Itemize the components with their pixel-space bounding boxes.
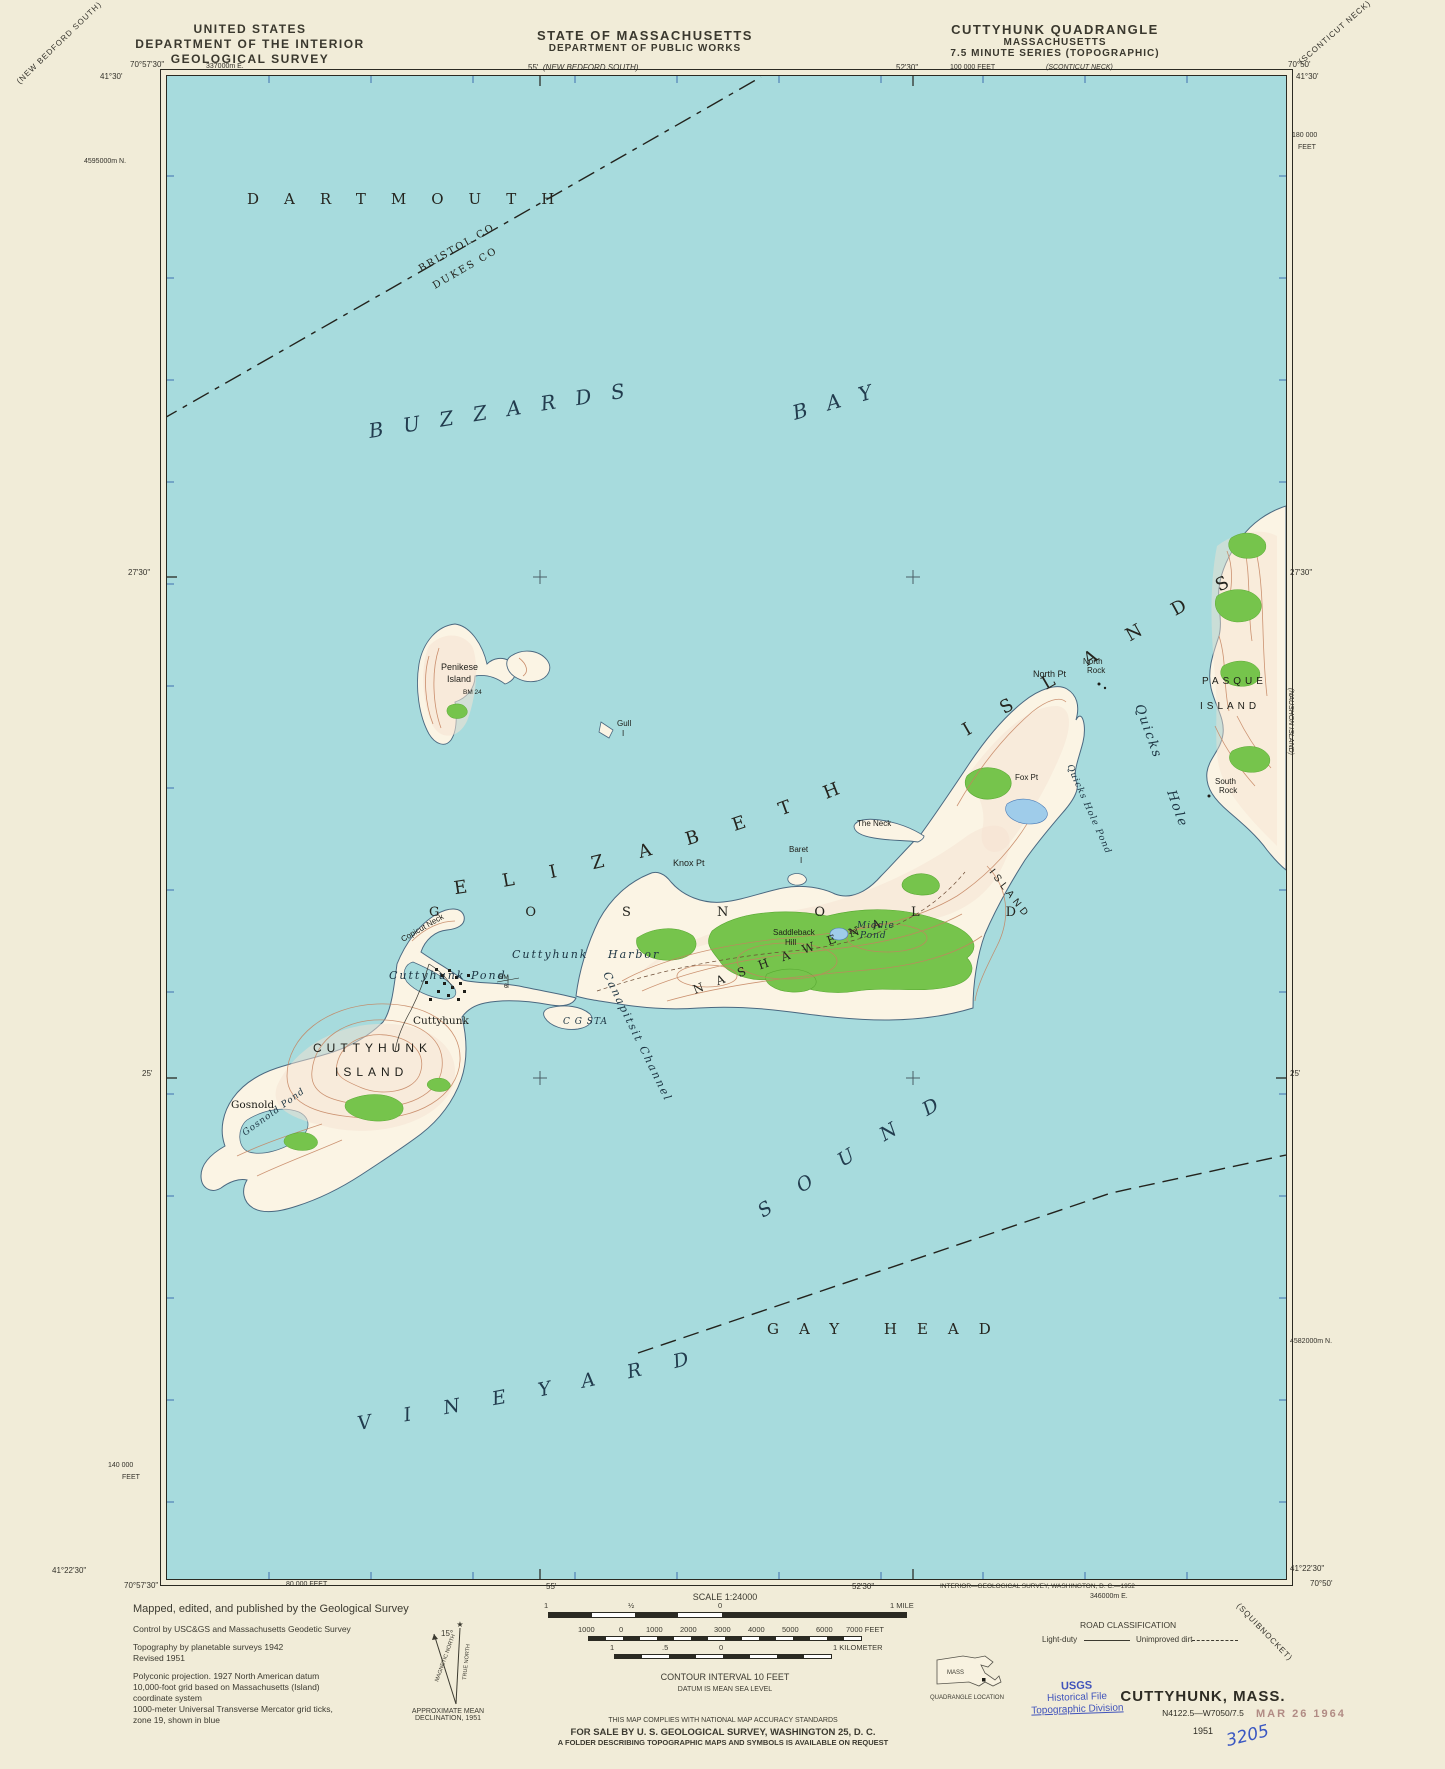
feet-100000-top: 100 000 FEET (950, 64, 995, 71)
the-neck-label: The Neck (857, 819, 892, 828)
received-date-stamp: MAR 26 1964 (1256, 1708, 1346, 1720)
scale-tick: 6000 (816, 1625, 833, 1634)
cuttyhunk-island-label-2: ISLAND (335, 1065, 408, 1079)
adjoining-quad-ne-diagonal: (SCONTICUT NECK) (1297, 0, 1373, 66)
folder-note: A FOLDER DESCRIBING TOPOGRAPHIC MAPS AND… (498, 1738, 948, 1747)
header-line: STATE OF MASSACHUSETTS (515, 28, 775, 43)
svg-text:★: ★ (456, 1620, 463, 1629)
utm-easting-top: 337000m E. (206, 63, 244, 70)
utm-northing-right: 4582000m N. (1290, 1338, 1332, 1345)
true-north-label: TRUE NORTH (462, 1644, 472, 1680)
saddleback-hill-label-1: Saddleback (773, 928, 816, 937)
feet-label-right: FEET (1298, 144, 1316, 151)
scale-tick: 7000 FEET (846, 1625, 884, 1634)
scale-tick: 1 (610, 1643, 614, 1652)
header-line: UNITED STATES (120, 22, 380, 37)
feet-140000-left: 140 000 (108, 1462, 133, 1469)
road-unimproved-label: Unimproved dirt (1136, 1635, 1192, 1644)
tick-55-top: 55' (NEW BEDFORD SOUTH) (528, 63, 638, 72)
pasque-island-label-1: PASQUE (1202, 676, 1267, 687)
cuttyhunk-harbor-label: Cuttyhunk Harbor (512, 948, 660, 961)
scale-tick: 4000 (748, 1625, 765, 1634)
tick-2730-right: 27'30" (1290, 568, 1312, 577)
quadrangle-location-caption: QUADRANGLE LOCATION (930, 1695, 1004, 1701)
scale-bar-km (614, 1654, 832, 1659)
credit-line: zone 19, shown in blue (133, 1715, 220, 1725)
topo-map: BRISTOL CO DUKES CO Penikese Island BM 2… (167, 76, 1286, 1579)
penikese-island-label-2: Island (447, 674, 471, 684)
corner-lat-se: 41°22'30" (1290, 1564, 1324, 1573)
archive-stamp: USGS Historical File Topographic Divisio… (1021, 1678, 1132, 1718)
scale-tick: 1 KILOMETER (833, 1643, 883, 1652)
adjoining-quad-east: (NAUSHON ISLAND) (1287, 688, 1294, 755)
feet-label-left: FEET (122, 1474, 140, 1481)
map-neatline: BRISTOL CO DUKES CO Penikese Island BM 2… (166, 75, 1287, 1580)
scale-tick: 1 MILE (890, 1601, 914, 1610)
gay-head-label: GAY HEAD (767, 1320, 1011, 1338)
scale-bar-feet (588, 1636, 862, 1641)
road-unimproved-sample (1192, 1640, 1238, 1641)
scale-tick: 0 (619, 1625, 623, 1634)
credit-line: 10,000-foot grid based on Massachusetts … (133, 1682, 320, 1692)
magnetic-north-label: MAGNETIC NORTH (434, 1634, 457, 1683)
gull-island-label-i: I (622, 729, 624, 738)
corner-lat-nw: 41°30' (100, 72, 123, 81)
credit-line: Topography by planetable surveys 1942 (133, 1642, 283, 1652)
cg-station-label: C G STA (563, 1017, 608, 1027)
tick-5230-top: 52'30" (896, 63, 918, 72)
gosnold-town-label: GOSNOLD (429, 905, 1102, 920)
scale-tick: .5 (662, 1643, 668, 1652)
credit-line: coordinate system (133, 1693, 202, 1703)
corner-lon-se: 70°50' (1310, 1579, 1333, 1588)
south-rock-label-2: Rock (1219, 786, 1238, 795)
header-line: DEPARTMENT OF THE INTERIOR (120, 37, 380, 52)
usgs-topo-sheet: { "header": { "left": ["UNITED STATES", … (0, 0, 1445, 1769)
datum-note: DATUM IS MEAN SEA LEVEL (600, 1686, 850, 1693)
scale-tick: ½ (628, 1601, 634, 1610)
scale-tick: 2000 (680, 1625, 697, 1634)
corner-lat-ne: 41°30' (1296, 72, 1319, 81)
baret-island-label-i: I (800, 856, 802, 865)
cuttyhunk-village-label: Cuttyhunk (413, 1015, 469, 1027)
credit-line: Polyconic projection. 1927 North America… (133, 1671, 319, 1681)
scale-title: SCALE 1:24000 (625, 1592, 825, 1602)
pasque-island-label-2: ISLAND (1200, 701, 1260, 712)
print-credit: INTERIOR—GEOLOGICAL SURVEY, WASHINGTON, … (940, 1583, 1135, 1590)
scale-tick: 3000 (714, 1625, 731, 1634)
dartmouth-label: DARTMOUTH (247, 190, 579, 208)
benchmark-label: BM 24 (463, 689, 482, 696)
cuttyhunk-pond-label: Cuttyhunk Pond (389, 969, 507, 982)
header-line: CUTTYHUNK QUADRANGLE (920, 22, 1190, 37)
adjoining-quad-ne-tick: (SCONTICUT NECK) (1046, 64, 1113, 71)
tick-25-left: 25' (142, 1069, 152, 1078)
state-abbrev: MASS (947, 1670, 964, 1676)
fox-point-label: Fox Pt (1015, 773, 1039, 782)
benchmark-6: 6 (504, 983, 508, 990)
utm-easting-bottom: 346000m E. (1090, 1593, 1128, 1600)
credit-line: Mapped, edited, and published by the Geo… (133, 1603, 409, 1615)
adjoining-quad-north: (NEW BEDFORD SOUTH) (543, 63, 639, 72)
scale-tick: 1000 (578, 1625, 595, 1634)
cuttyhunk-island-label-1: CUTTYHUNK (313, 1041, 432, 1055)
adjoining-quad-nw-diagonal: (NEW BEDFORD SOUTH) (15, 0, 104, 86)
gull-island-label: Gull (617, 719, 631, 728)
scale-tick: 1000 (646, 1625, 663, 1634)
credit-line: 1000-meter Universal Transverse Mercator… (133, 1704, 333, 1714)
credit-line: Revised 1951 (133, 1653, 185, 1663)
declination-caption: APPROXIMATE MEANDECLINATION, 1951 (388, 1708, 508, 1722)
road-class-title: ROAD CLASSIFICATION (1080, 1620, 1176, 1630)
quadrangle-header: CUTTYHUNK QUADRANGLE MASSACHUSETTS 7.5 M… (920, 22, 1190, 59)
feet-180000-right: 180 000 (1292, 132, 1317, 139)
declination-diagram: ★ 15° MAGNETIC NORTH TRUE NORTH (408, 1620, 504, 1710)
scale-tick: 0 (719, 1643, 723, 1652)
tick-5230-bottom: 52'30" (852, 1582, 874, 1591)
header-line: 7.5 MINUTE SERIES (TOPOGRAPHIC) (920, 48, 1190, 59)
sheet-name: CUTTYHUNK, MASS. (1118, 1688, 1288, 1705)
credit-line: Control by USC&GS and Massachusetts Geod… (133, 1624, 351, 1634)
gosnold-village-label: Gosnold (231, 1099, 275, 1111)
adjoining-quad-se-diagonal: (SQUIBNOCKET) (1235, 1601, 1295, 1662)
road-light-duty-sample (1084, 1640, 1130, 1641)
header-line: DEPARTMENT OF PUBLIC WORKS (515, 43, 775, 54)
corner-lat-sw: 41°22'30" (52, 1566, 86, 1575)
utm-northing-left: 4595000m N. (84, 158, 126, 165)
contour-interval: CONTOUR INTERVAL 10 FEET (600, 1672, 850, 1682)
corner-lon-sw: 70°57'30" (124, 1581, 158, 1590)
sale-note: FOR SALE BY U. S. GEOLOGICAL SURVEY, WAS… (523, 1727, 923, 1738)
knox-point-label: Knox Pt (673, 858, 705, 868)
road-light-duty-label: Light-duty (1042, 1635, 1077, 1644)
state-header: STATE OF MASSACHUSETTS DEPARTMENT OF PUB… (515, 28, 775, 54)
penikese-island-label-1: Penikese (441, 662, 478, 672)
corner-lon-nw: 70°57'30" (130, 60, 164, 69)
tick-2730-left: 27'30" (128, 568, 150, 577)
scale-tick: 1 (544, 1601, 548, 1610)
scale-tick: 5000 (782, 1625, 799, 1634)
tick-25-right: 25' (1290, 1069, 1300, 1078)
tick-55-bottom: 55' (546, 1582, 556, 1591)
scale-bar-miles (548, 1612, 907, 1618)
accuracy-note: THIS MAP COMPLIES WITH NATIONAL MAP ACCU… (523, 1717, 923, 1724)
baret-island-label: Baret (789, 845, 809, 854)
south-rock-label-1: South (1215, 777, 1236, 786)
feet-80000-bottom: 80 000 FEET (286, 1581, 327, 1588)
quadrangle-location-map: MASS (933, 1648, 1005, 1694)
scale-tick: 0 (718, 1601, 722, 1610)
header-line: MASSACHUSETTS (920, 37, 1190, 48)
